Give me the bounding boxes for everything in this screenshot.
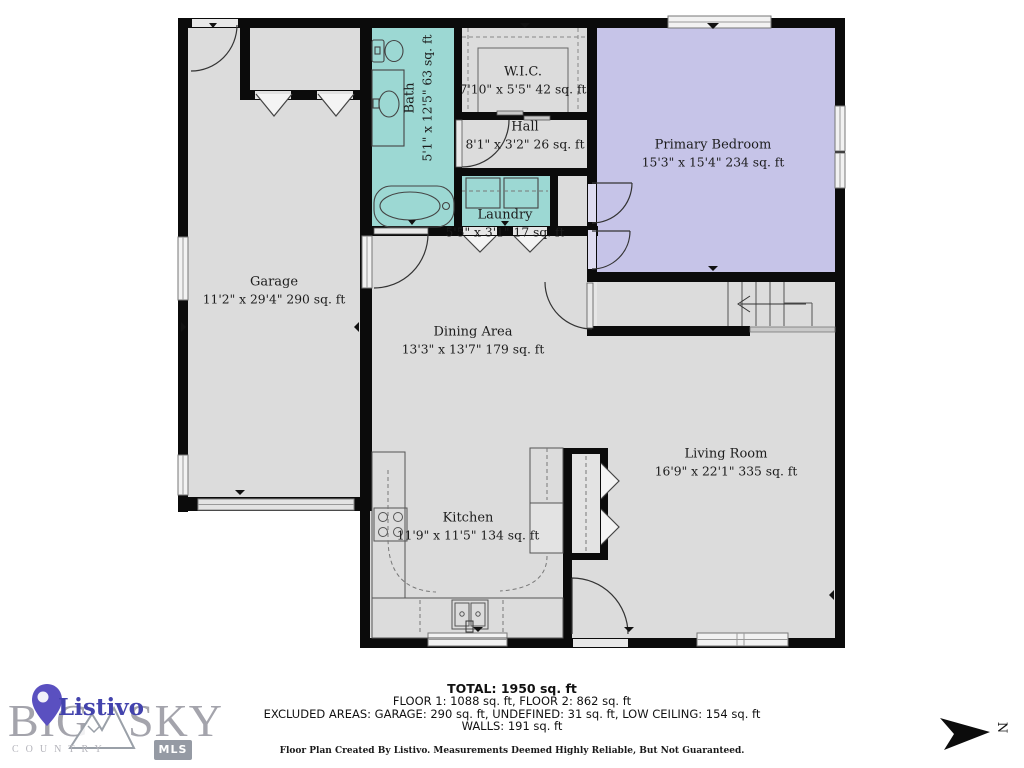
door-leaf: [456, 120, 462, 167]
room-dims: 11'9" x 11'5" 134 sq. ft: [397, 527, 540, 544]
room-label-garage: Garage 11'2" x 29'4" 290 sq. ft: [203, 275, 346, 308]
room-name: Kitchen: [397, 511, 540, 528]
sliding-door-icon: [497, 111, 523, 115]
bigsky-listivo-logo: BIG SKY COUNTRY MLS Listivo: [6, 684, 221, 766]
door-leaf: [587, 283, 593, 328]
room-name: Dining Area: [402, 325, 545, 342]
door-leaf: [374, 228, 428, 234]
floor-plan-canvas: [0, 0, 1024, 768]
room-name: Hall: [465, 120, 584, 137]
room-label-wic: W.I.C. 7'10" x 5'5" 42 sq. ft: [460, 65, 587, 98]
room-label-living: Living Room 16'9" x 22'1" 335 sq. ft: [655, 447, 798, 480]
wall-segment: [454, 168, 597, 176]
wall-segment: [587, 18, 597, 176]
mls-badge: MLS: [154, 740, 192, 760]
wall-segment: [563, 448, 572, 638]
north-arrow-icon: [938, 710, 994, 758]
north-label: N: [994, 722, 1009, 733]
room-dims: 13'3" x 13'7" 179 sq. ft: [402, 341, 545, 358]
room-dims: 15'3" x 15'4" 234 sq. ft: [642, 154, 785, 171]
listivo-wordmark: Listivo: [58, 694, 144, 721]
room-label-dining: Dining Area 13'3" x 13'7" 179 sq. ft: [402, 325, 545, 358]
wall-segment: [587, 272, 845, 282]
bedroom-door-opening: [588, 230, 596, 269]
room-dims: 16'9" x 22'1" 335 sq. ft: [655, 463, 798, 480]
wall-segment: [240, 18, 250, 100]
room-name: Laundry: [445, 208, 564, 225]
wall-segment: [563, 553, 608, 560]
wall-segment: [360, 18, 845, 28]
room-name: W.I.C.: [460, 65, 587, 82]
stairs-sill: [750, 327, 835, 332]
room-dims: 5'1" x 12'5" 63 sq. ft: [419, 35, 436, 162]
room-dims: 7'10" x 5'5" 42 sq. ft: [460, 81, 587, 98]
room-dims: 8'1" x 3'2" 26 sq. ft: [465, 136, 584, 153]
floor-plan-page: Garage 11'2" x 29'4" 290 sq. ft Bath 5'1…: [0, 0, 1024, 768]
logo-country-text: COUNTRY: [12, 744, 109, 755]
room-label-primary-bedroom: Primary Bedroom 15'3" x 15'4" 234 sq. ft: [642, 138, 785, 171]
pantry-interior: [572, 454, 600, 553]
front-door-threshold: [573, 639, 628, 647]
room-label-kitchen: Kitchen 11'9" x 11'5" 134 sq. ft: [397, 511, 540, 544]
room-label-bath: Bath 5'1" x 12'5" 63 sq. ft: [403, 35, 436, 162]
compass: N: [938, 710, 1024, 758]
room-name: Bath: [403, 35, 420, 162]
wall-segment: [360, 497, 370, 648]
bedroom-door-opening: [588, 184, 596, 222]
room-name: Garage: [203, 275, 346, 292]
wall-segment: [587, 326, 750, 336]
room-name: Living Room: [655, 447, 798, 464]
room-dims: 5'5" x 3'1" 17 sq. ft: [445, 224, 564, 241]
room-name: Primary Bedroom: [642, 138, 785, 155]
room-dims: 11'2" x 29'4" 290 sq. ft: [203, 291, 346, 308]
room-label-laundry: Laundry 5'5" x 3'1" 17 sq. ft: [445, 208, 564, 241]
room-label-hall: Hall 8'1" x 3'2" 26 sq. ft: [465, 120, 584, 153]
